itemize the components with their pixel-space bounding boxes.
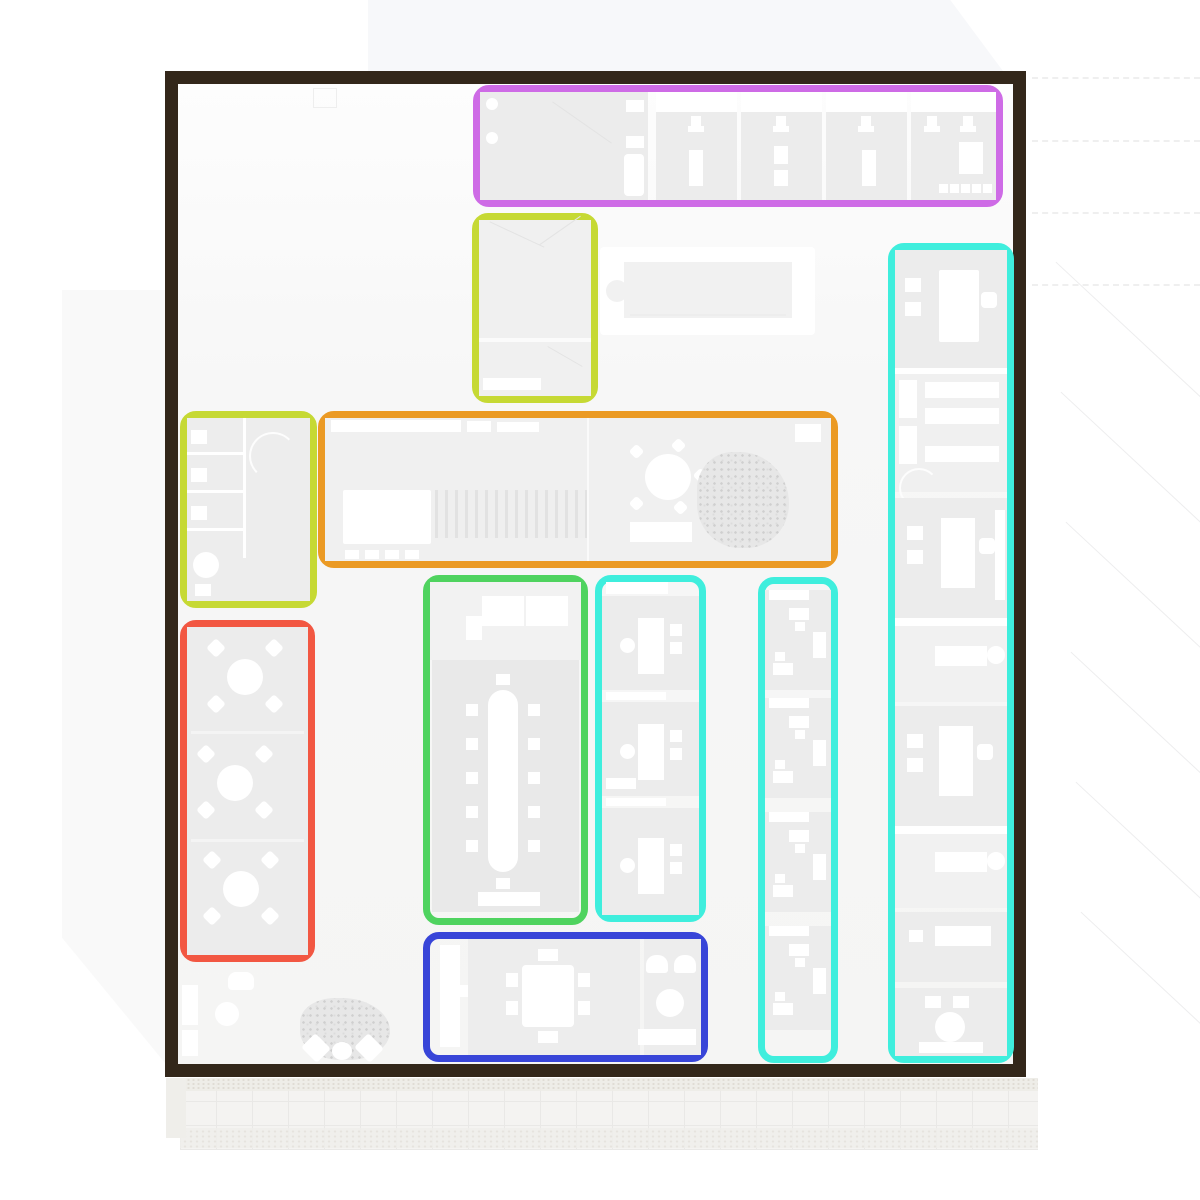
chair: [963, 116, 973, 126]
drawer-unit: [670, 624, 682, 636]
desk: [773, 1003, 793, 1015]
office-room: [895, 498, 1007, 618]
dining-table: [522, 965, 574, 1027]
chair: [466, 738, 478, 750]
dining-panel: [468, 939, 640, 1055]
wall-band: [467, 421, 491, 432]
zone-workstations-mid: [595, 575, 706, 922]
armchair: [646, 955, 668, 973]
desk: [638, 838, 664, 894]
side-table: [466, 616, 482, 640]
desk: [960, 126, 976, 132]
site-hatch-line: [1071, 652, 1200, 810]
wall-seam: [243, 418, 246, 558]
chair: [673, 500, 689, 516]
chair: [981, 292, 997, 308]
office-room: [895, 250, 1007, 368]
credenza: [919, 1042, 983, 1053]
desk: [789, 830, 809, 842]
door-swing-line: [552, 101, 612, 143]
site-hatch-line: [1061, 392, 1200, 550]
site-dashed-line: [1032, 140, 1200, 142]
office-room: [741, 92, 822, 200]
wall-seam: [187, 490, 243, 493]
chair: [578, 973, 590, 987]
chair: [528, 704, 540, 716]
cabinet: [813, 632, 826, 658]
kitchen-counter: [343, 490, 431, 544]
wall-seam: [895, 826, 1007, 834]
chair: [620, 638, 635, 653]
office-room: [895, 706, 1007, 826]
chair: [260, 850, 280, 870]
chair: [206, 638, 226, 658]
cabinet: [182, 1030, 198, 1056]
desk: [939, 270, 979, 342]
fixture: [195, 584, 211, 596]
stair-notch: [606, 280, 628, 302]
corridor-band: [656, 92, 737, 112]
office-room: [656, 92, 737, 200]
corridor-band: [741, 92, 822, 112]
chair: [202, 906, 222, 926]
stool: [405, 550, 419, 559]
chair: [907, 550, 923, 564]
chair: [907, 734, 923, 748]
chair: [506, 973, 518, 987]
break-room: [895, 988, 1007, 1056]
chair: [332, 1042, 352, 1060]
fixture: [486, 132, 498, 144]
chair: [206, 694, 226, 714]
chair: [775, 652, 785, 661]
sofa: [482, 596, 524, 626]
zone-wc-left: [180, 411, 317, 608]
drawer-unit: [670, 748, 682, 760]
desk: [773, 663, 793, 675]
planter: [697, 452, 789, 548]
cabinet: [774, 146, 788, 164]
corridor-band: [606, 582, 668, 594]
room-panel: [325, 418, 831, 561]
fixture: [486, 98, 498, 110]
chair: [264, 694, 284, 714]
chair: [466, 704, 478, 716]
cabinet: [182, 985, 198, 1025]
drawer-unit: [670, 862, 682, 874]
wall-band: [497, 422, 539, 432]
office-room: [765, 926, 831, 1030]
office-room: [602, 702, 699, 796]
chair: [578, 1001, 590, 1015]
chair: [907, 758, 923, 772]
stair-core-inner: [624, 262, 792, 318]
cabinet: [959, 142, 983, 174]
round-table: [935, 1012, 965, 1042]
hedge-row-bottom: [180, 1128, 1038, 1148]
chair: [795, 622, 805, 631]
chair: [260, 906, 280, 926]
chair: [528, 840, 540, 852]
chair: [795, 958, 805, 967]
chair: [528, 806, 540, 818]
site-hatch-line: [1066, 522, 1200, 680]
stool: [385, 550, 399, 559]
corridor-band: [606, 692, 666, 700]
fixture: [626, 136, 644, 148]
fixture: [925, 996, 941, 1008]
desk: [941, 518, 975, 588]
zone-canteen: [318, 411, 838, 568]
terrace-stub: [166, 1078, 186, 1138]
cabinet: [606, 778, 636, 789]
corridor-band: [606, 798, 666, 806]
fixture: [953, 996, 969, 1008]
cabinet: [483, 378, 541, 390]
chair: [466, 772, 478, 784]
round-table: [645, 454, 691, 500]
cabinet: [899, 380, 917, 418]
chair: [254, 800, 274, 820]
wall-seam: [187, 528, 243, 531]
corridor-band: [769, 698, 809, 708]
desk: [789, 716, 809, 728]
chair: [254, 744, 274, 764]
chair: [466, 840, 478, 852]
desk: [789, 944, 809, 956]
zone-conference: [423, 575, 588, 925]
shelf: [925, 408, 999, 424]
chair: [776, 116, 786, 126]
chair: [987, 646, 1005, 664]
toilet-fixture: [191, 468, 207, 482]
stair-tread-line: [630, 314, 786, 316]
bar-counter: [435, 490, 587, 538]
chair: [620, 858, 635, 873]
corridor-band: [911, 92, 996, 112]
chair: [506, 1001, 518, 1015]
chair: [775, 874, 785, 883]
office-room: [602, 808, 699, 915]
office-room: [765, 812, 831, 912]
chair: [795, 730, 805, 739]
chair: [196, 744, 216, 764]
fixture: [626, 100, 644, 112]
floor-plan-canvas: [0, 0, 1200, 1200]
armchair: [228, 972, 254, 990]
desk: [858, 126, 874, 132]
site-hatch-line: [1081, 912, 1200, 1070]
desk: [939, 726, 973, 796]
cabinet: [813, 740, 826, 766]
wall-seam: [187, 452, 243, 455]
site-hatch-line: [1076, 782, 1200, 940]
coffee-table: [656, 989, 684, 1017]
door-swing-line: [547, 346, 582, 367]
fixture: [795, 424, 821, 442]
chair: [905, 278, 921, 292]
office-room: [765, 590, 831, 690]
cabinet: [689, 150, 703, 186]
cabinet: [862, 150, 876, 186]
credenza: [478, 892, 540, 906]
desk: [935, 852, 987, 872]
chair: [979, 538, 995, 554]
stool: [972, 184, 981, 193]
conference-table: [488, 690, 518, 872]
site-dashed-line: [1032, 77, 1200, 79]
room-panel: [479, 220, 591, 396]
corridor-band: [769, 926, 809, 936]
round-table: [217, 765, 253, 801]
cabinet: [813, 854, 826, 880]
wall-seam: [479, 338, 591, 342]
side-table: [215, 1002, 239, 1026]
meeting-nook: [895, 834, 1007, 908]
wall-seam: [895, 618, 1007, 626]
chair: [528, 738, 540, 750]
chair: [538, 1031, 558, 1043]
chair: [905, 302, 921, 316]
sofa: [526, 596, 568, 626]
desk: [935, 646, 987, 666]
hedge-row-top: [186, 1078, 1038, 1091]
door-swing-line: [539, 216, 581, 245]
cabinet: [774, 170, 788, 186]
stool: [365, 550, 379, 559]
wall-band: [331, 420, 461, 432]
desk: [935, 926, 991, 946]
sideboard: [630, 522, 692, 542]
site-shape-left: [62, 290, 165, 1063]
chair: [629, 496, 645, 512]
toilet-fixture: [191, 506, 207, 520]
chair: [496, 674, 510, 685]
divider-line: [191, 731, 304, 734]
chair: [987, 852, 1005, 870]
site-shape-top: [368, 0, 1010, 71]
zone-offices-top: [473, 85, 1003, 207]
sink: [193, 552, 219, 578]
chair: [264, 638, 284, 658]
office-room: [765, 698, 831, 798]
desk: [789, 608, 809, 620]
meeting-nook: [895, 626, 1007, 702]
chair: [927, 116, 937, 126]
lounge-panel: [644, 939, 701, 1055]
cabinet: [624, 154, 644, 196]
stool: [345, 550, 359, 559]
corridor-band: [769, 590, 809, 600]
chair: [909, 930, 923, 942]
storage-room: [895, 374, 1007, 492]
drawer-unit: [670, 730, 682, 742]
desk: [688, 126, 704, 132]
chair: [528, 772, 540, 784]
desk: [924, 126, 940, 132]
desk: [773, 771, 793, 783]
zone-offices-right: [888, 243, 1014, 1063]
stool: [961, 184, 970, 193]
chair: [861, 116, 871, 126]
site-dashed-line: [1032, 212, 1200, 214]
shelf: [925, 446, 999, 462]
anteroom-panel: [430, 582, 581, 660]
chair: [775, 992, 785, 1001]
chair: [466, 806, 478, 818]
drawer-unit: [670, 642, 682, 654]
chair: [629, 444, 645, 460]
door-swing-line: [490, 221, 545, 247]
room-panel: [480, 92, 648, 200]
chair: [775, 760, 785, 769]
wall-detail: [313, 88, 337, 108]
zone-break-tables: [180, 620, 315, 962]
fixture: [456, 985, 468, 997]
office-room: [895, 912, 1007, 982]
cabinet: [899, 426, 917, 464]
stool: [983, 184, 992, 193]
cabinet: [813, 968, 826, 994]
wall-seam: [587, 418, 589, 561]
cabinet: [995, 510, 1005, 600]
chair: [196, 800, 216, 820]
desk: [773, 126, 789, 132]
chair: [977, 744, 993, 760]
desk: [638, 724, 664, 780]
round-table: [227, 659, 263, 695]
stool: [939, 184, 948, 193]
chair: [496, 878, 510, 889]
office-room: [602, 596, 699, 690]
chair: [671, 438, 687, 454]
credenza: [638, 1029, 696, 1045]
drawer-unit: [670, 844, 682, 856]
chair: [691, 116, 701, 126]
round-table: [223, 871, 259, 907]
zone-lounge-dining: [423, 932, 708, 1062]
room-panel: [187, 418, 310, 601]
room-panel: [187, 627, 308, 955]
chair: [538, 949, 558, 961]
desk: [638, 618, 664, 674]
shelf: [925, 382, 999, 398]
armchair: [674, 955, 696, 973]
chair: [202, 850, 222, 870]
toilet-fixture: [191, 430, 207, 444]
corridor-band: [769, 812, 809, 822]
room-panel: [432, 660, 579, 912]
chair: [795, 844, 805, 853]
corridor-band: [826, 92, 907, 112]
divider-line: [191, 839, 304, 842]
desk: [773, 885, 793, 897]
chair: [907, 526, 923, 540]
site-dashed-line: [1032, 284, 1200, 286]
office-room: [826, 92, 907, 200]
office-room: [911, 92, 996, 200]
stool: [950, 184, 959, 193]
zone-stair-room: [472, 213, 598, 403]
zone-offices-strip: [758, 577, 838, 1063]
door-arc: [249, 432, 297, 480]
chair: [620, 744, 635, 759]
